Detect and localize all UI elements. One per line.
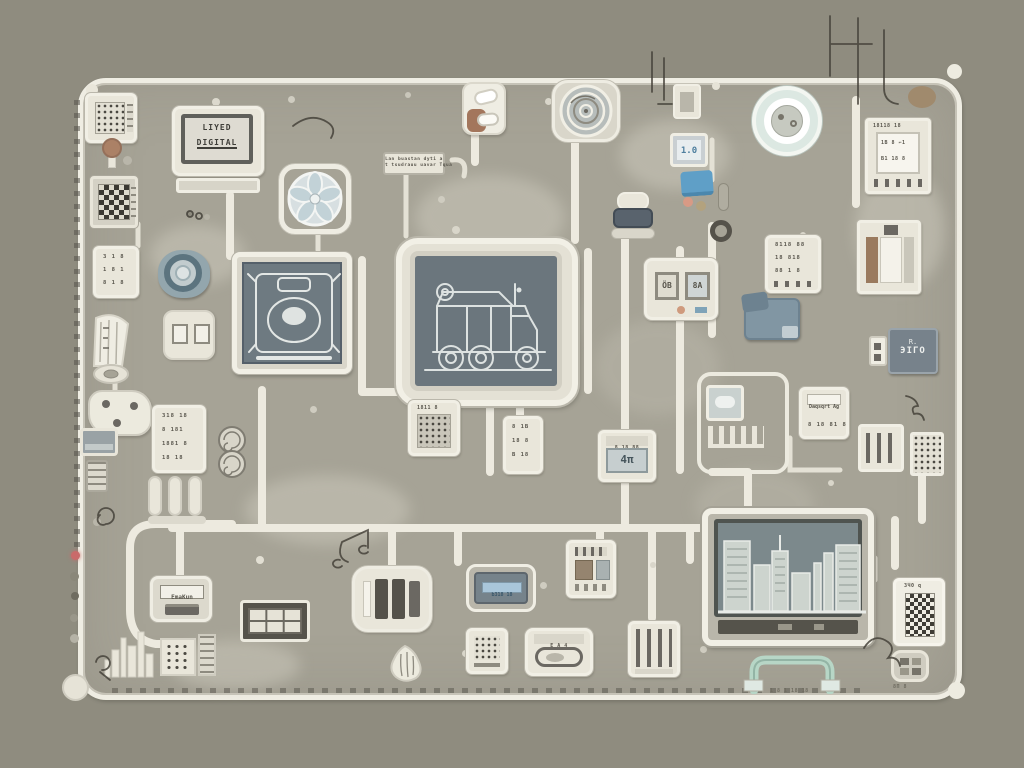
sketch-scribbles [0,0,1024,768]
illustration-stage: LIYED DIGITAL Lan buastan dyti a t tsudr… [0,0,1024,768]
